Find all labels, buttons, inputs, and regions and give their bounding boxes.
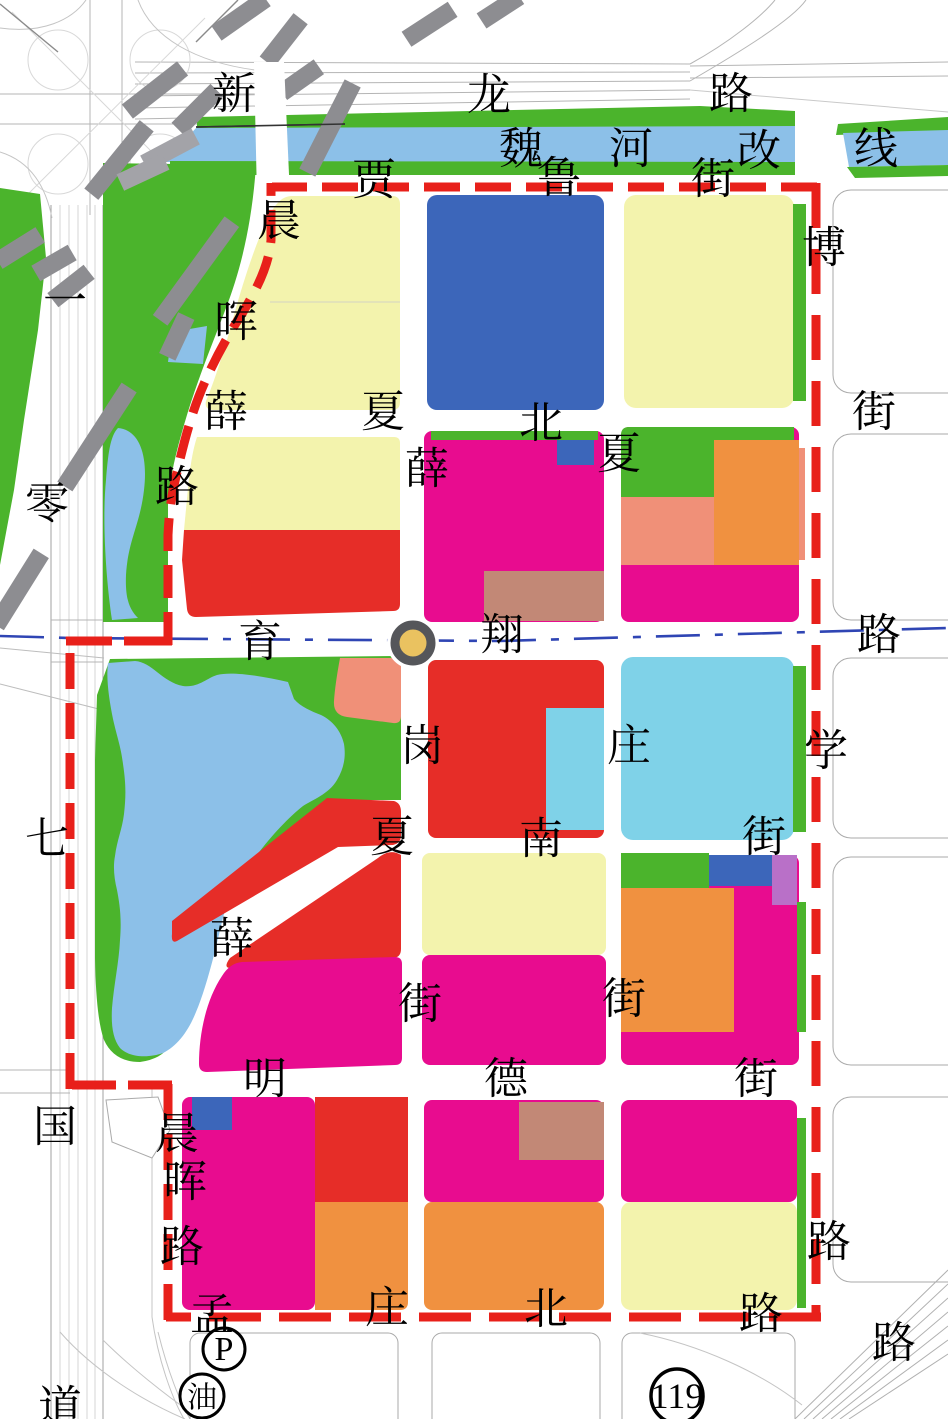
svg-text:119: 119: [651, 1376, 704, 1416]
svg-text:P: P: [215, 1331, 234, 1368]
